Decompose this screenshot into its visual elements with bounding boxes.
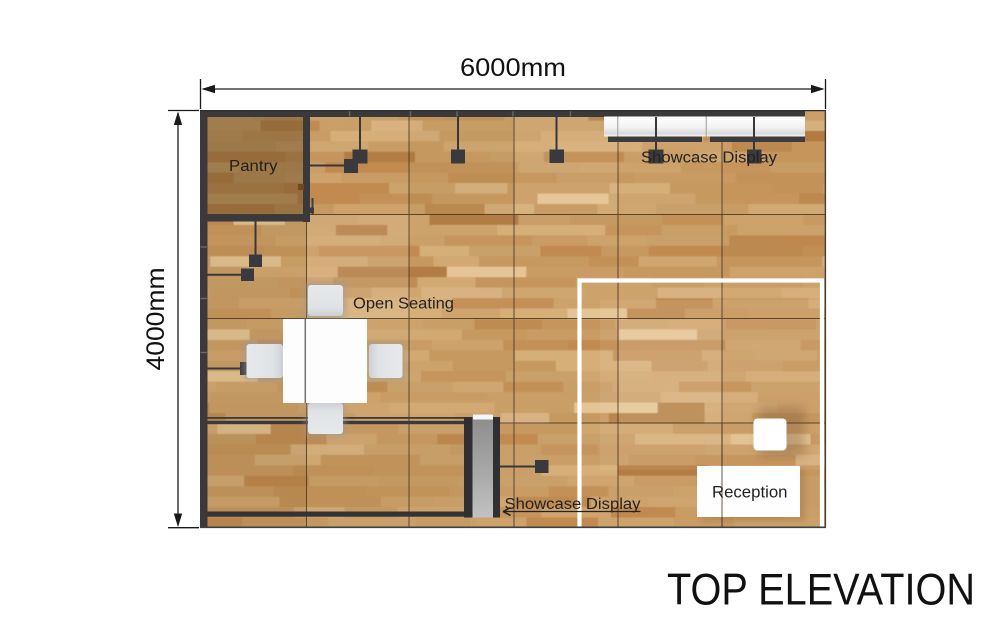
svg-text:Reception: Reception xyxy=(712,484,788,502)
svg-text:6000mm: 6000mm xyxy=(460,54,566,82)
svg-text:4000mm: 4000mm xyxy=(142,268,170,371)
svg-text:Pantry: Pantry xyxy=(229,158,278,175)
svg-text:Showcase Display: Showcase Display xyxy=(641,150,777,167)
svg-text:Showcase Display: Showcase Display xyxy=(505,496,641,513)
svg-text:TOP ELEVATION: TOP ELEVATION xyxy=(667,566,975,615)
svg-text:Open Seating: Open Seating xyxy=(353,296,454,313)
